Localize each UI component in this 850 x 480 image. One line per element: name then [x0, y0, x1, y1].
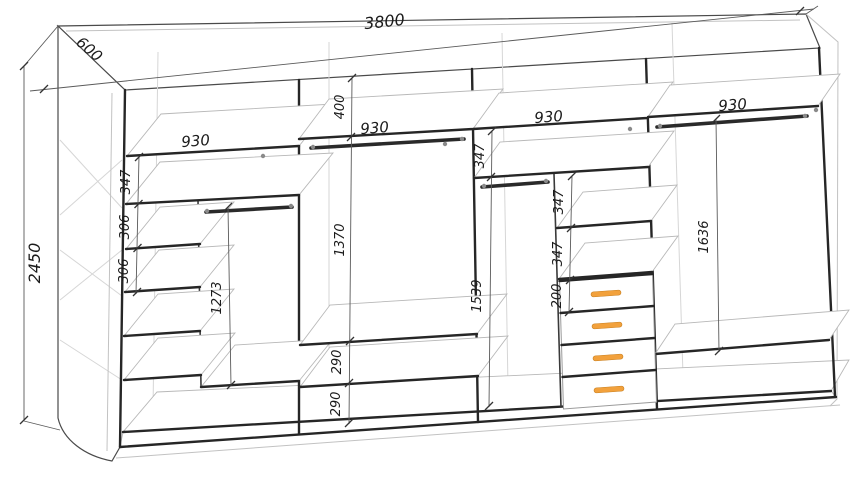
dim-label-s3-hanging-height: 1539: [470, 279, 485, 312]
dim-label-s3-side-gap-2: 347: [551, 241, 566, 267]
dim-label-s3-shelf-width: 930: [534, 107, 564, 127]
dim-label-overall-height: 2450: [25, 243, 44, 284]
fitting-dot: [261, 154, 265, 158]
fitting-dot: [814, 108, 818, 112]
dim-label-s3-gap-below-top: 347: [473, 143, 488, 169]
fitting-dot: [482, 184, 486, 188]
wardrobe-drawing-page: 3800 2450 600 930 347 306 306 1273 400 9…: [0, 0, 850, 480]
fitting-dot: [803, 114, 807, 118]
fitting-dot: [460, 137, 464, 141]
fitting-dot: [205, 209, 209, 213]
left-side-panel: [58, 26, 125, 461]
hanging-rod-s4: [657, 116, 807, 127]
fitting-dot: [658, 124, 662, 128]
dim-label-s1-gap-2: 306: [118, 215, 133, 240]
dim-label-s2-bottom-gap-1: 290: [330, 350, 345, 375]
shelf-s1-top: [127, 104, 333, 156]
dim-label-s1-hanging-height: 1273: [210, 281, 225, 314]
shelf-s1-left-3: [126, 202, 234, 249]
dim-label-s4-shelf-width: 930: [718, 95, 748, 115]
dim-label-s2-top-gap: 400: [333, 95, 348, 120]
shelf-s4-lower: [655, 310, 849, 354]
dim-label-s1-shelf-width: 930: [181, 131, 211, 151]
fitting-dot: [443, 142, 447, 146]
wardrobe-technical-drawing: 3800 2450 600 930 347 306 306 1273 400 9…: [0, 0, 850, 480]
dim-label-s2-shelf-width: 930: [360, 118, 390, 138]
hanging-rod-s2: [311, 139, 464, 148]
fitting-dot: [544, 179, 548, 183]
dim-label-s3-drawer-height: 200: [550, 284, 565, 309]
dim-label-s2-bottom-gap-2: 290: [329, 392, 344, 417]
fitting-dot: [311, 145, 315, 149]
hanging-rod-s3: [482, 182, 548, 187]
dim-label-s1-gap-3: 306: [117, 259, 132, 284]
dim-label-s4-hanging-height: 1636: [697, 220, 712, 253]
fitting-dot: [628, 127, 632, 131]
shelf-s3-side-2: [559, 236, 678, 279]
fitting-dot: [289, 204, 293, 208]
drawer-unit: [560, 274, 657, 409]
dim-label-s2-hanging-height: 1370: [333, 223, 348, 256]
shelf-s3-side-1: [557, 185, 677, 228]
dim-label-s1-gap-top: 347: [119, 169, 134, 195]
shelf-s1-rod-shelf: [126, 153, 333, 204]
dim-label-s3-side-gap-1: 347: [552, 189, 567, 215]
